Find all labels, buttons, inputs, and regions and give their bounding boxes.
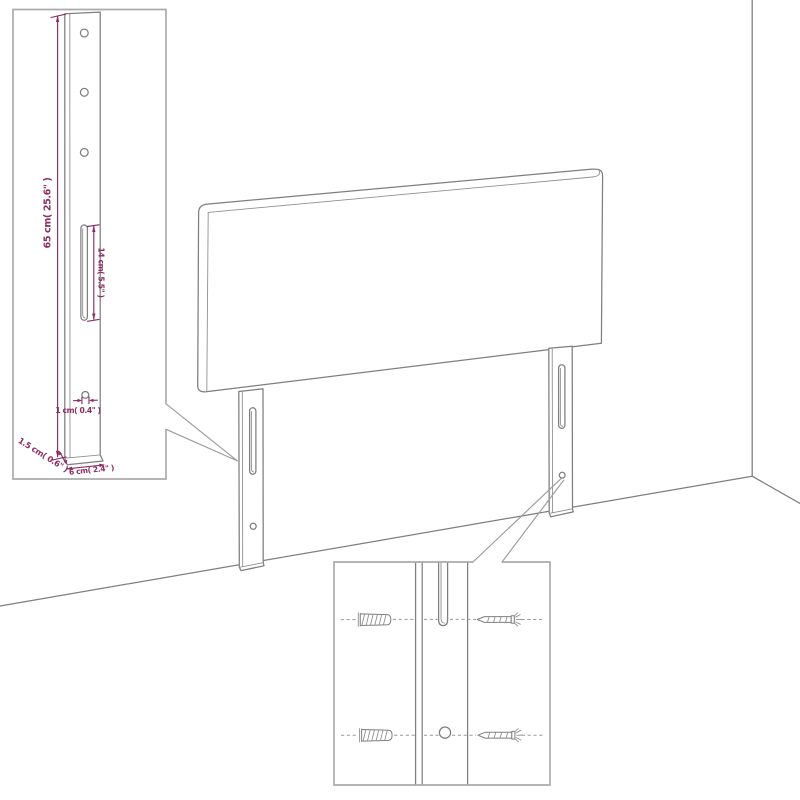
assembly-diagram-canvas: 65 cm( 25.6" ) 14 cm( 5.5" ) 1 cm( 0.4" …: [0, 0, 800, 800]
headboard-outline: [198, 169, 603, 392]
headboard-leg-left: [239, 389, 264, 571]
floor-line-right: [752, 476, 800, 503]
inset1-leg-drawing: [65, 12, 103, 465]
dim-hole-label: 1 cm( 0.4" ): [55, 406, 100, 415]
inset2-background: [334, 562, 550, 785]
inset1-leg-outline: [65, 12, 103, 465]
headboard-leg-right: [549, 346, 573, 517]
diagram-stage: 65 cm( 25.6" ) 14 cm( 5.5" ) 1 cm( 0.4" …: [0, 0, 800, 800]
inset2-round-hole: [439, 727, 450, 738]
headboard-panel: [198, 169, 603, 392]
wall-anchor-icon: [358, 613, 391, 627]
inset1-callout-pointer: [166, 404, 237, 461]
dim-height-label: 65 cm( 25.6" ): [42, 178, 53, 249]
wall-anchor-icon: [360, 728, 393, 742]
dim-slot-label: 14 cm( 5.5" ): [97, 247, 106, 297]
inset-mounting-detail: [334, 479, 564, 785]
